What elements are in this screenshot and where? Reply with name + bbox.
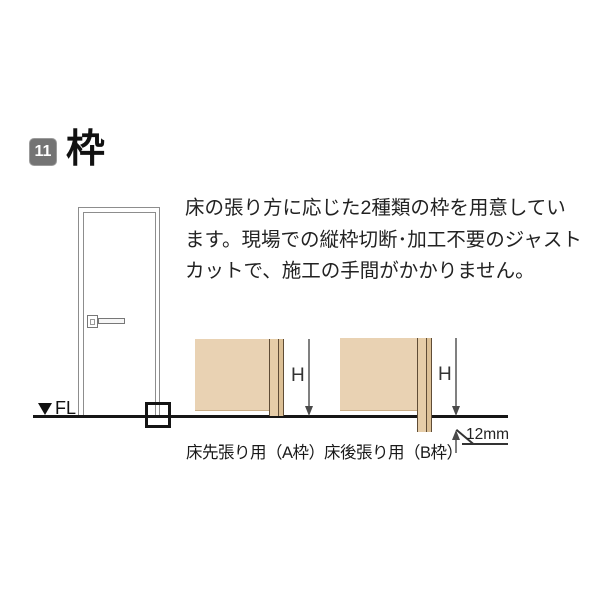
paragraph-line: 床の張り方に応じた2種類の枠を用意してい	[185, 193, 590, 225]
paragraph-line: ます。現場での縦枠切断･加工不要のジャスト	[185, 225, 590, 257]
height-dimension-label-b: H	[438, 364, 452, 386]
height-dimension-line-a	[308, 339, 310, 408]
diagram-a-caption: 床先張り用（A枠）	[186, 439, 325, 463]
diagram-b-caption: 床後張り用（B枠）	[324, 439, 463, 463]
height-dimension-line-b	[455, 338, 457, 408]
floor-level-triangle-icon	[38, 403, 52, 415]
wall-panel-b	[340, 338, 418, 411]
height-dimension-label-a: H	[291, 365, 305, 387]
frame-corner-highlight-box	[145, 402, 171, 428]
floor-level-label: FL	[55, 398, 76, 419]
section-number-badge: 11	[29, 138, 57, 166]
door-handle-hub	[90, 319, 95, 325]
vertical-frame-b	[417, 338, 432, 432]
arrow-down-icon	[452, 406, 460, 416]
door-handle-lever	[98, 318, 125, 324]
intro-paragraph: 床の張り方に応じた2種類の枠を用意してい ます。現場での縦枠切断･加工不要のジャ…	[185, 193, 590, 288]
wall-panel-a	[195, 339, 270, 411]
catalog-page: 11 枠 床の張り方に応じた2種類の枠を用意してい ます。現場での縦枠切断･加工…	[0, 0, 600, 600]
section-title: 枠	[66, 126, 105, 174]
protrusion-dimension-label: 12mm	[466, 426, 509, 444]
arrow-down-icon	[305, 406, 313, 416]
door-panel	[83, 212, 156, 417]
paragraph-line: カットで、施工の手間がかかりません。	[185, 256, 590, 288]
vertical-frame-a	[269, 339, 284, 416]
